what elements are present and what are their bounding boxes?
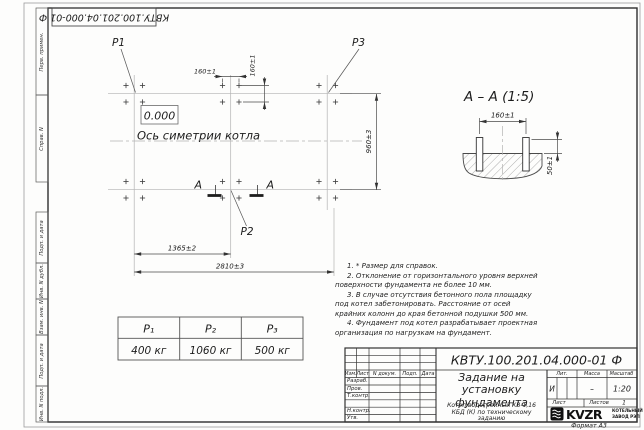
tb-col-dokum: N докум.	[373, 371, 396, 377]
load-label-p3: P3	[352, 37, 365, 49]
format-label: Формат А3	[571, 423, 607, 430]
anchor-bolt-left	[476, 138, 483, 172]
section-letter-right: А	[266, 179, 275, 192]
dim-2810-label: 2810±3	[216, 263, 244, 271]
section-dim-160-label: 160±1	[491, 112, 515, 120]
tb-mass-label: Масса	[584, 371, 600, 377]
loads-table-value-p1: 400 кг	[131, 345, 167, 357]
kvzr-logo-sub-line1: КОТЕЛЬНЫЙ	[612, 408, 643, 414]
dim-960-label: 960±3	[365, 130, 373, 154]
title-block-designation: КВТУ.100.201.04.000-01 Ф	[451, 352, 622, 367]
kvzr-logo-icon	[550, 407, 564, 421]
kvzr-logo-subtitle: КОТЕЛЬНЫЙ ЗАВОД РЭП	[612, 408, 643, 419]
kvzr-logo-sub-line2: ЗАВОД РЭП	[612, 414, 643, 420]
section-view-title: А – А (1:5)	[463, 89, 534, 105]
margin-field-perv-primen: Перв. примен.	[39, 32, 45, 71]
margin-field-vzam-inv: Взам. инв. N	[39, 300, 45, 334]
margin-field-podp-data-2: Подп. и дата	[39, 343, 45, 378]
section-letter-left: А	[193, 179, 202, 192]
section-dim-50-label: 50±1	[546, 156, 554, 175]
load-label-p1: P1	[112, 37, 125, 49]
tb-col-list: Лист	[356, 371, 369, 377]
tb-scale-value: 1:20	[613, 384, 631, 393]
loads-table-header-p2: P₂	[205, 323, 217, 336]
notes-block: 1. * Размер для справок. 2. Отклонение о…	[335, 262, 543, 338]
elevation-mark-value: 0.000	[144, 110, 176, 123]
section-cut-marks	[208, 185, 264, 196]
anchor-bolt-right	[523, 138, 530, 172]
tb-row-tkontr: Т.контр.	[347, 393, 370, 399]
dim-160-vertical-label: 160±1	[249, 55, 257, 77]
margin-field-sprav-n: Справ. N	[39, 127, 45, 151]
tb-row-nkontr: Н.контр.	[347, 408, 371, 414]
margin-field-podp-data-1: Подп. и дата	[39, 220, 45, 255]
tb-col-izm: Изм.	[345, 371, 357, 377]
dim-160-horizontal-label: 160±1	[194, 68, 216, 76]
note-4: 4. Фундамент под котел разрабатывает про…	[335, 319, 543, 338]
dim-1365-label: 1365±2	[168, 245, 197, 253]
tb-col-podp: Подп.	[402, 371, 417, 377]
tb-col-data: Дата	[422, 371, 435, 377]
load-label-p2: P2	[241, 226, 254, 238]
tb-scale-label: Масштаб	[610, 371, 634, 377]
tb-lit-label: Лит.	[556, 371, 568, 377]
kvzr-logo-text: KVZR	[566, 407, 602, 422]
note-2: 2. Отклонение от горизонтального уровня …	[335, 272, 543, 291]
top-designation-text: КВТУ.100.201.04.000-01 Ф	[39, 12, 169, 23]
tb-lit-value: И	[549, 384, 555, 393]
note-3: 3. В случае отсутствия бетонного пола пл…	[335, 291, 543, 320]
tb-sheets-value: 1	[622, 400, 626, 407]
loads-table-header-p3: P₃	[267, 323, 279, 336]
drawing-sheet: 1365±2 2810±3 960±3 160±1 160±1 P1 P3 P2…	[0, 0, 644, 430]
boiler-symmetry-axis-label: Ось симетрии котла	[137, 129, 260, 143]
tb-row-utv: Утв.	[347, 415, 358, 421]
tb-sheet-label: Лист	[552, 400, 565, 406]
margin-field-inv-dubl: Инв. N дубл.	[39, 264, 45, 298]
tb-subject: Котел водогрейный КВ-1,16 КБД (К) по тех…	[440, 403, 543, 423]
kvzr-logo: KVZR КОТЕЛЬНЫЙ ЗАВОД РЭП	[549, 407, 637, 422]
loads-table-value-p2: 1060 кг	[190, 345, 232, 357]
loads-table-value-p3: 500 кг	[255, 345, 291, 357]
tb-row-prov: Пров.	[347, 386, 362, 392]
tb-row-razrab: Разраб.	[347, 378, 368, 384]
note-1: 1. * Размер для справок.	[335, 262, 543, 272]
tb-sheets-label: Листов	[589, 400, 609, 406]
tb-mass-value: –	[590, 384, 594, 393]
loads-table-header-p1: P₁	[143, 323, 154, 336]
margin-field-inv-podl: Инв. N подл.	[39, 387, 45, 421]
